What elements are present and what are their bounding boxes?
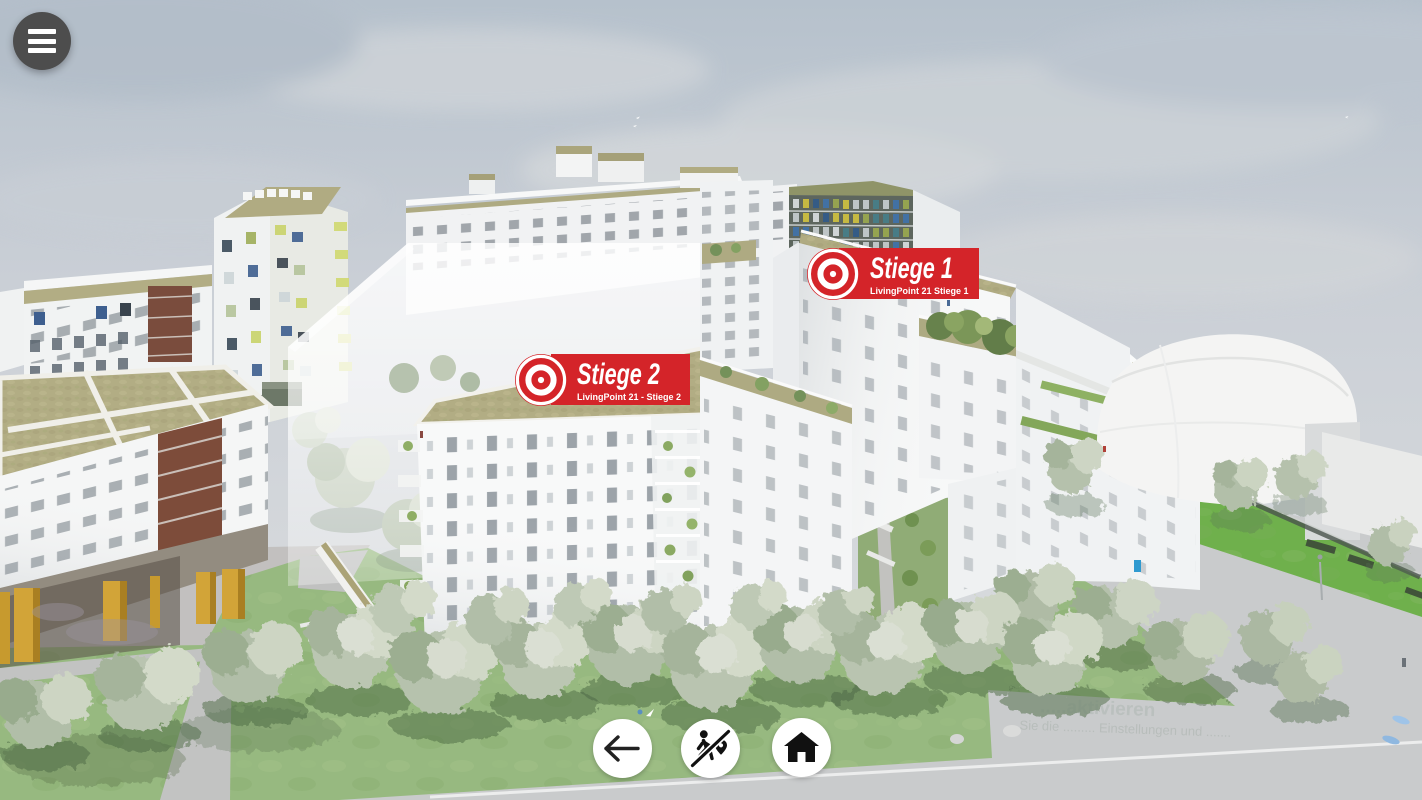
svg-text:.....aktivieren: .....aktivieren — [1040, 696, 1156, 721]
